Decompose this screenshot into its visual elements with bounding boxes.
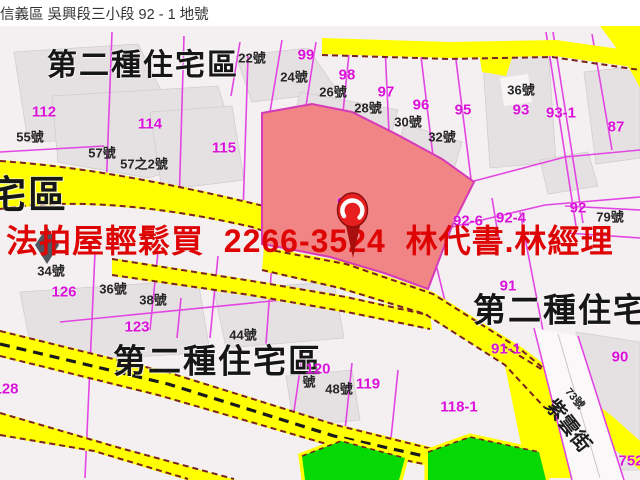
cadastral-map-canvas[interactable]: 信義區 吳興段三小段 92 - 1 地號 第二種住宅區宅區第二種住宅區第二種住宅… <box>0 0 640 480</box>
page-title: 信義區 吳興段三小段 92 - 1 地號 <box>0 3 209 24</box>
location-pin-icon[interactable] <box>338 193 368 258</box>
marker-layer <box>0 0 640 480</box>
